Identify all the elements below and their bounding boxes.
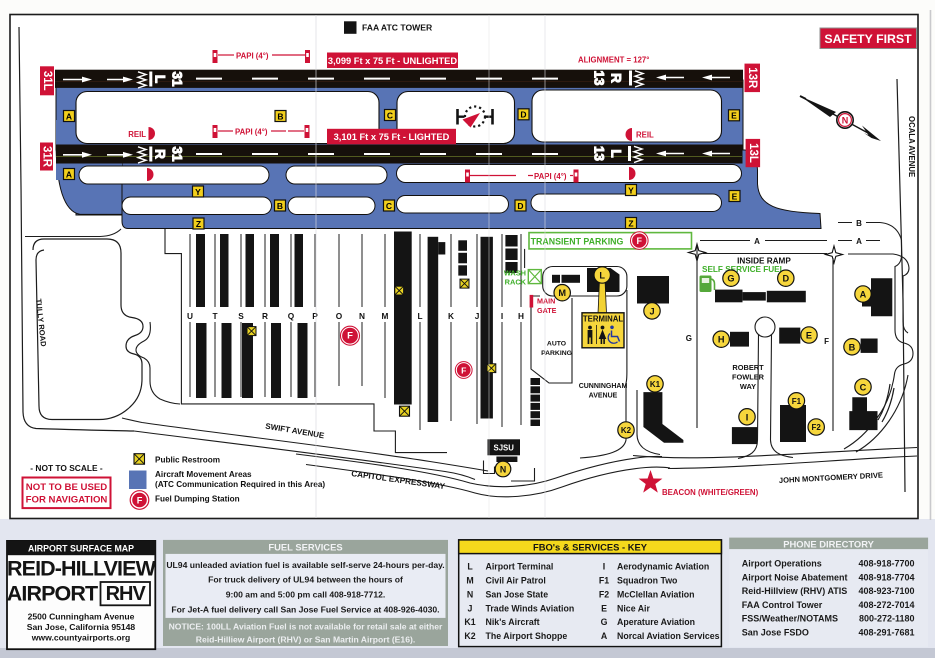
svg-text:L: L xyxy=(417,311,422,321)
svg-text:SELF SERVICE FUEL: SELF SERVICE FUEL xyxy=(702,265,785,274)
svg-text:A: A xyxy=(66,111,72,121)
svg-text:Civil Air Patrol: Civil Air Patrol xyxy=(486,576,546,586)
svg-text:PAPI (4°): PAPI (4°) xyxy=(534,172,567,181)
svg-text:E: E xyxy=(732,191,738,201)
svg-text:SJSU: SJSU xyxy=(494,444,515,453)
svg-text:WASH: WASH xyxy=(504,269,526,278)
svg-text:31: 31 xyxy=(170,71,185,87)
svg-text:(ATC Communication Required in: (ATC Communication Required in this Area… xyxy=(155,480,325,489)
svg-text:F: F xyxy=(824,337,829,346)
svg-text:PAPI (4°): PAPI (4°) xyxy=(236,52,269,61)
svg-text:F2: F2 xyxy=(812,423,822,432)
svg-text:ROBERT: ROBERT xyxy=(732,363,764,372)
svg-text:G: G xyxy=(601,617,608,627)
svg-text:BEACON (WHITE/GREEN): BEACON (WHITE/GREEN) xyxy=(662,488,759,497)
svg-text:FSS/Weather/NOTAMS: FSS/Weather/NOTAMS xyxy=(742,614,838,624)
svg-text:E: E xyxy=(806,331,812,341)
svg-text:Fuel Dumping Station: Fuel Dumping Station xyxy=(155,495,240,504)
svg-text:REIL: REIL xyxy=(636,131,654,140)
svg-text:B: B xyxy=(849,342,856,352)
svg-text:- NOT TO SCALE -: - NOT TO SCALE - xyxy=(30,463,103,473)
svg-text:A: A xyxy=(754,237,760,246)
svg-text:408-923-7100: 408-923-7100 xyxy=(858,586,914,596)
svg-text:AIRPORT SURFACE MAP: AIRPORT SURFACE MAP xyxy=(28,544,134,554)
svg-text:F: F xyxy=(347,331,353,342)
svg-text:F2: F2 xyxy=(599,590,609,600)
svg-text:Z: Z xyxy=(628,218,633,228)
svg-text:F: F xyxy=(461,366,466,376)
svg-text:Reid-Hillview (RHV) ATIS: Reid-Hillview (RHV) ATIS xyxy=(742,586,848,596)
svg-text:408-291-7681: 408-291-7681 xyxy=(858,628,914,638)
svg-text:Airport Operations: Airport Operations xyxy=(742,559,822,569)
svg-text:H: H xyxy=(718,335,725,345)
svg-text:31L: 31L xyxy=(41,71,53,91)
svg-text:FBO's & SERVICES - KEY: FBO's & SERVICES - KEY xyxy=(533,542,648,553)
svg-text:N: N xyxy=(467,590,473,600)
svg-text:F1: F1 xyxy=(792,397,802,406)
svg-text:J: J xyxy=(475,311,480,321)
svg-text:P: P xyxy=(312,311,318,321)
svg-text:Public Restroom: Public Restroom xyxy=(155,456,220,465)
svg-text:13: 13 xyxy=(592,146,607,162)
svg-text:GATE: GATE xyxy=(537,306,557,315)
svg-text:31: 31 xyxy=(170,146,185,162)
svg-text:G: G xyxy=(727,274,734,284)
svg-text:Q: Q xyxy=(288,311,295,321)
svg-text:OCALA AVENUE: OCALA AVENUE xyxy=(907,116,916,177)
svg-text:Reid-Hilliew Airport (RHV) or: Reid-Hilliew Airport (RHV) or San Martin… xyxy=(196,635,415,645)
svg-text:13: 13 xyxy=(592,70,607,86)
svg-text:The Airport Shoppe: The Airport Shoppe xyxy=(486,631,568,641)
svg-text:McClellan Aviation: McClellan Aviation xyxy=(617,590,695,600)
svg-text:For truck delivery of UL94 bet: For truck delivery of UL94 between the h… xyxy=(208,575,403,585)
svg-text:C: C xyxy=(386,201,392,211)
svg-text:Airport Noise Abatement: Airport Noise Abatement xyxy=(742,572,848,582)
svg-text:B: B xyxy=(277,201,283,211)
svg-text:J: J xyxy=(468,604,473,614)
svg-text:Y: Y xyxy=(195,187,201,197)
svg-text:J: J xyxy=(649,306,654,316)
svg-text:San Jose State: San Jose State xyxy=(486,590,549,600)
svg-text:Trade Winds Aviation: Trade Winds Aviation xyxy=(486,604,575,614)
svg-text:Nice Air: Nice Air xyxy=(617,604,650,614)
svg-text:13R: 13R xyxy=(746,67,758,89)
svg-text:CUNNINGHAM: CUNNINGHAM xyxy=(579,383,628,390)
svg-text:AUTO: AUTO xyxy=(547,341,566,348)
svg-text:Squadron Two: Squadron Two xyxy=(617,576,678,586)
svg-text:K2: K2 xyxy=(464,631,475,641)
svg-text:L: L xyxy=(599,271,605,281)
svg-text:REID-HILLVIEW: REID-HILLVIEW xyxy=(7,557,157,581)
svg-text:MAIN: MAIN xyxy=(537,297,555,306)
svg-text:R: R xyxy=(262,311,268,321)
svg-text:I: I xyxy=(501,311,503,321)
svg-text:M: M xyxy=(382,311,389,321)
svg-text:FUEL SERVICES: FUEL SERVICES xyxy=(268,542,342,553)
svg-text:Airport Terminal: Airport Terminal xyxy=(486,562,554,572)
svg-text:K1: K1 xyxy=(464,617,475,627)
svg-text:F: F xyxy=(637,236,643,246)
svg-text:S: S xyxy=(238,311,244,321)
svg-text:N: N xyxy=(842,116,849,126)
svg-text:Nik's Aircraft: Nik's Aircraft xyxy=(486,617,540,627)
svg-text:K1: K1 xyxy=(650,380,661,389)
svg-text:T: T xyxy=(212,311,217,321)
svg-text:M: M xyxy=(466,576,473,586)
svg-text:ALIGNMENT = 127°: ALIGNMENT = 127° xyxy=(578,56,649,65)
svg-text:FOWLER: FOWLER xyxy=(732,373,765,382)
svg-text:H: H xyxy=(518,311,524,321)
svg-text:Y: Y xyxy=(628,185,634,195)
svg-text:B: B xyxy=(277,111,283,121)
svg-text:PHONE DIRECTORY: PHONE DIRECTORY xyxy=(783,538,874,549)
svg-text:408-918-7700: 408-918-7700 xyxy=(858,559,914,569)
svg-text:I: I xyxy=(603,562,605,572)
svg-text:B: B xyxy=(856,219,862,228)
svg-text:L: L xyxy=(609,149,624,157)
svg-text:N: N xyxy=(500,465,506,475)
svg-text:408-272-7014: 408-272-7014 xyxy=(858,600,914,610)
svg-text:13L: 13L xyxy=(747,143,759,163)
svg-text:San Jose, California 95148: San Jose, California 95148 xyxy=(27,622,136,632)
svg-text:N: N xyxy=(359,311,365,321)
svg-text:800-272-1180: 800-272-1180 xyxy=(859,614,915,624)
svg-text:A: A xyxy=(856,237,862,246)
svg-text:D: D xyxy=(520,110,526,120)
svg-text:I: I xyxy=(746,412,749,422)
svg-text:3,101 Ft x 75 Ft - LIGHTED: 3,101 Ft x 75 Ft - LIGHTED xyxy=(334,132,450,142)
svg-text:K2: K2 xyxy=(621,426,632,435)
svg-text:Aerodynamic Aviation: Aerodynamic Aviation xyxy=(617,562,709,572)
svg-text:PARKING: PARKING xyxy=(541,350,572,357)
svg-text:C: C xyxy=(387,110,393,120)
svg-text:NOT TO BE USED: NOT TO BE USED xyxy=(26,482,107,493)
svg-text:C: C xyxy=(860,382,867,392)
svg-text:Aircraft Movement Areas: Aircraft Movement Areas xyxy=(155,470,252,479)
svg-text:L: L xyxy=(153,75,168,83)
svg-text:Z: Z xyxy=(196,219,201,229)
svg-text:O: O xyxy=(336,311,343,321)
svg-text:E: E xyxy=(731,111,737,121)
svg-text:INSIDE RAMP: INSIDE RAMP xyxy=(737,257,791,266)
svg-text:K: K xyxy=(448,311,454,321)
svg-text:For Jet-A fuel delivery call S: For Jet-A fuel delivery call San Jose Fu… xyxy=(171,605,439,615)
svg-text:Norcal Aviation Services: Norcal Aviation Services xyxy=(617,631,720,641)
svg-text:U: U xyxy=(187,311,193,321)
svg-text:R: R xyxy=(153,149,168,159)
svg-text:NOTICE: 100LL Aviation Fuel is: NOTICE: 100LL Aviation Fuel is not avail… xyxy=(169,622,443,632)
svg-text:F1: F1 xyxy=(599,576,609,586)
svg-text:AVENUE: AVENUE xyxy=(589,393,618,400)
svg-text:FAA ATC TOWER: FAA ATC TOWER xyxy=(362,23,433,33)
svg-text:2500 Cunningham Avenue: 2500 Cunningham Avenue xyxy=(28,612,135,622)
svg-text:3,099 Ft x 75 Ft - UNLIGHTED: 3,099 Ft x 75 Ft - UNLIGHTED xyxy=(328,56,457,66)
svg-text:WAY: WAY xyxy=(740,382,756,391)
svg-text:Aperature Aviation: Aperature Aviation xyxy=(617,617,695,627)
svg-text:G: G xyxy=(686,334,692,343)
svg-text:L: L xyxy=(467,562,473,572)
svg-text:R: R xyxy=(609,73,624,83)
svg-text:FAA Control Tower: FAA Control Tower xyxy=(742,600,823,610)
svg-text:UL94 unleaded aviation fuel is: UL94 unleaded aviation fuel is available… xyxy=(166,560,444,570)
svg-text:F: F xyxy=(137,496,143,506)
svg-text:408-918-7704: 408-918-7704 xyxy=(858,572,914,582)
svg-text:www.countyairports.org: www.countyairports.org xyxy=(31,633,131,643)
svg-text:M: M xyxy=(558,288,566,298)
svg-text:TERMINAL: TERMINAL xyxy=(583,315,624,324)
svg-text:A: A xyxy=(601,631,608,641)
svg-text:D: D xyxy=(517,201,523,211)
svg-text:SAFETY FIRST: SAFETY FIRST xyxy=(824,32,912,46)
svg-text:31R: 31R xyxy=(41,146,53,168)
svg-text:9:00 am and 5:00 pm call 408-9: 9:00 am and 5:00 pm call 408-918-7712. xyxy=(226,590,386,600)
svg-text:AIRPORT: AIRPORT xyxy=(7,582,98,606)
svg-text:E: E xyxy=(601,604,607,614)
svg-text:RACK: RACK xyxy=(505,278,527,287)
svg-text:RHV: RHV xyxy=(106,583,147,605)
svg-text:REIL: REIL xyxy=(128,130,146,139)
svg-text:A: A xyxy=(860,290,867,300)
svg-text:San Jose FSDO: San Jose FSDO xyxy=(742,628,809,638)
svg-text:A: A xyxy=(66,169,72,179)
svg-text:D: D xyxy=(782,274,789,284)
svg-text:FOR NAVIGATION: FOR NAVIGATION xyxy=(26,495,108,506)
svg-text:PAPI (4°): PAPI (4°) xyxy=(235,128,268,137)
